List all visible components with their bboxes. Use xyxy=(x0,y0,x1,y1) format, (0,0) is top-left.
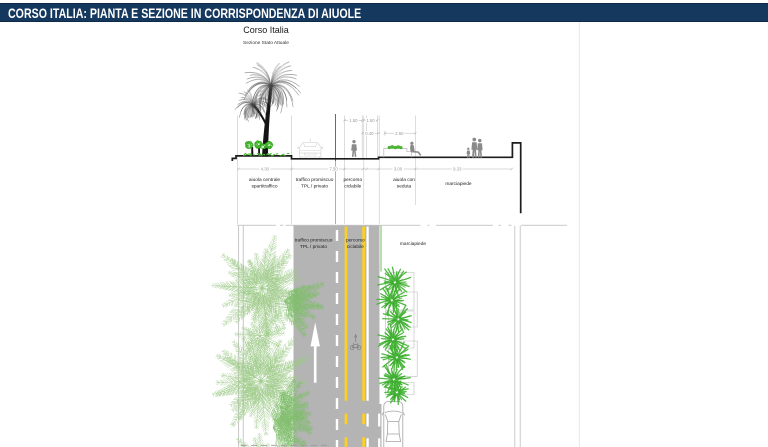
svg-text:marciapiede: marciapiede xyxy=(445,181,471,187)
svg-text:marciapiede: marciapiede xyxy=(400,241,426,247)
svg-text:4.30: 4.30 xyxy=(261,167,270,172)
svg-text:3.00: 3.00 xyxy=(394,167,403,172)
svg-text:ciclabile: ciclabile xyxy=(347,244,364,250)
svg-text:TPL / privato: TPL / privato xyxy=(301,184,328,190)
svg-text:ciclabile: ciclabile xyxy=(344,184,361,190)
svg-text:1.50: 1.50 xyxy=(366,118,375,123)
svg-text:seduta: seduta xyxy=(397,184,412,190)
svg-text:percorso: percorso xyxy=(343,177,362,183)
svg-text:traffico promiscuo: traffico promiscuo xyxy=(296,177,334,183)
svg-text:aiuola centrale: aiuola centrale xyxy=(249,177,281,183)
svg-text:0.40: 0.40 xyxy=(365,131,374,136)
svg-text:spartitraffico: spartitraffico xyxy=(251,184,277,190)
svg-text:TPL / privato: TPL / privato xyxy=(300,244,327,250)
svg-text:7.50: 7.50 xyxy=(329,167,338,172)
svg-text:2.60: 2.60 xyxy=(395,131,404,136)
svg-text:aiuola con: aiuola con xyxy=(393,177,415,183)
svg-text:1.50: 1.50 xyxy=(349,118,358,123)
svg-text:traffico promiscuo: traffico promiscuo xyxy=(295,238,333,244)
svg-text:9.33: 9.33 xyxy=(453,167,462,172)
svg-text:percorso: percorso xyxy=(346,238,365,244)
